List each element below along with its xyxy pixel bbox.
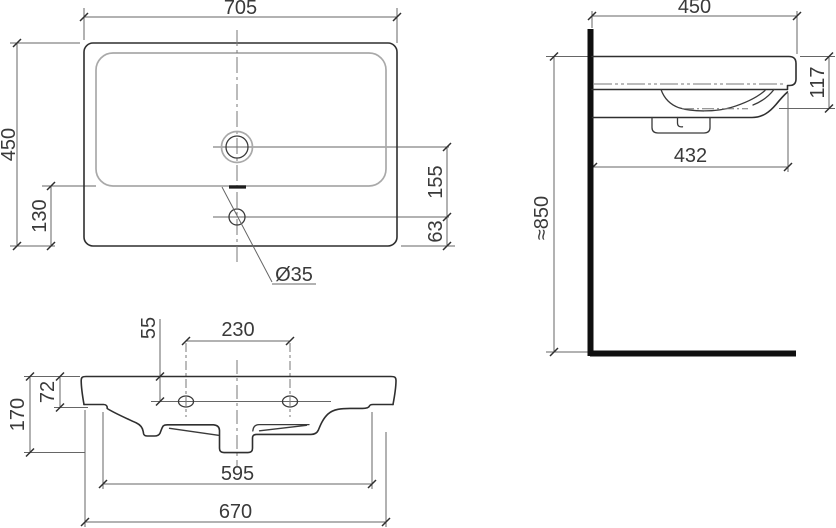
basin-outline-top [84, 43, 397, 246]
dim-top-overall-width: 705 [224, 0, 257, 19]
side-view: 450 117 432 ≈850 [531, 0, 835, 357]
dim-top-bowl-to-front: 130 [29, 199, 51, 232]
dim-top-drain-to-tap: 155 [425, 165, 447, 198]
dim-front-tap-spacing: 230 [221, 319, 254, 341]
bowl-profile-side [661, 90, 774, 111]
dim-top-overall-depth: 450 [0, 128, 20, 161]
dim-front-overall-height: 170 [7, 398, 29, 431]
dim-tap-hole-diameter: Ø35 [275, 264, 313, 286]
front-view-dimension-lines [30, 341, 386, 522]
basin-rim-front [81, 377, 396, 405]
bowl-edge-top [96, 53, 386, 186]
drawing-svg: 705 450 130 155 63 Ø35 55 230 72 170 595… [0, 0, 836, 528]
dim-side-overall-depth: 450 [678, 0, 711, 18]
dim-front-tap-drop: 55 [138, 317, 160, 339]
front-view: 55 230 72 170 595 670 [7, 317, 396, 527]
wall [588, 29, 594, 356]
dim-side-depth-below-rim: 432 [674, 145, 707, 167]
drain-boss-side [652, 118, 710, 134]
basin-rim-side [592, 57, 796, 90]
dim-front-rim-thickness: 72 [37, 381, 59, 403]
front-view-dimension-ticks [26, 337, 390, 526]
floor [590, 351, 796, 357]
technical-drawing: 705 450 130 155 63 Ø35 55 230 72 170 595… [0, 0, 836, 528]
side-view-dimension-lines [592, 16, 829, 167]
tap-hole-centerlines [186, 343, 290, 417]
dim-side-front-height: 117 [807, 67, 829, 99]
basin-body-front [84, 405, 393, 453]
dim-front-inner-width: 595 [221, 463, 254, 485]
front-view-extension-lines [24, 319, 386, 527]
top-view: 705 450 130 155 63 Ø35 [0, 0, 455, 286]
dim-side-mounting-height: ≈850 [531, 196, 553, 240]
dim-top-tap-to-front: 63 [425, 220, 447, 242]
dim-front-body-width: 670 [219, 501, 252, 523]
